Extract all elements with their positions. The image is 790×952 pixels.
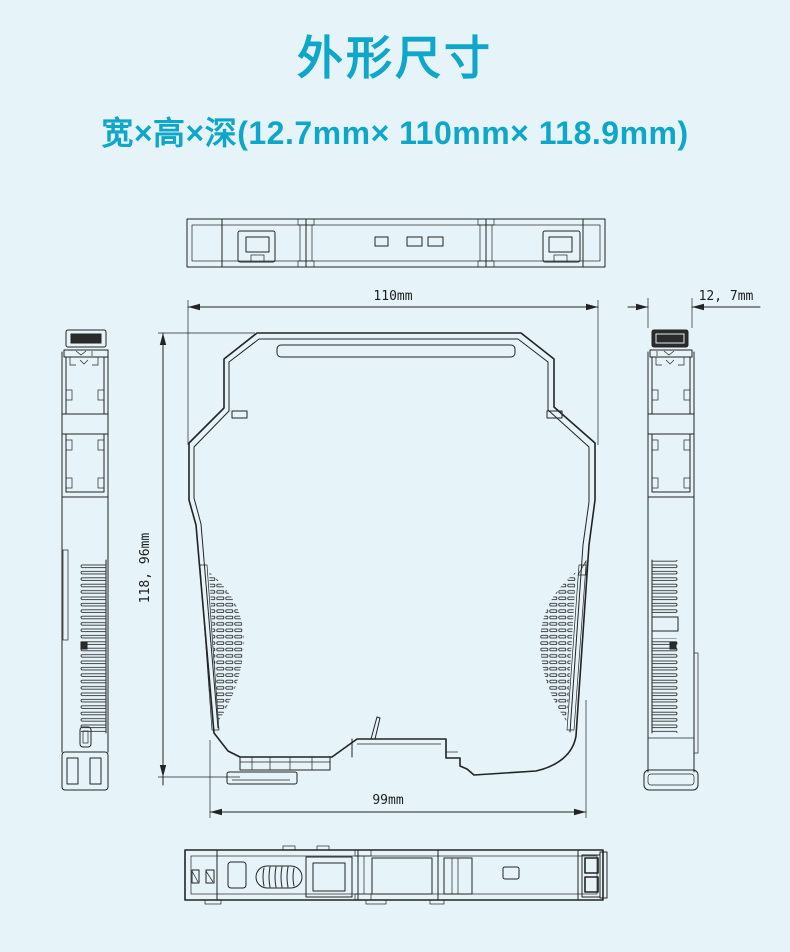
dim-label-width: 110mm <box>373 289 412 304</box>
bottom-view-drawing <box>185 846 607 904</box>
left-side-view-drawing <box>62 330 108 790</box>
dim-label-thickness: 12, 7mm <box>699 289 754 304</box>
dimension-annotations: 110mm 118, 96mm 99mm 12, 7mm <box>138 289 760 818</box>
outline-dimension-drawing: 110mm 118, 96mm 99mm 12, 7mm <box>0 190 790 952</box>
dim-label-height: 118, 96mm <box>138 533 153 604</box>
top-view-drawing <box>187 219 605 267</box>
dimensions-subtitle: 宽×高×深(12.7mm× 110mm× 118.9mm) <box>0 108 790 154</box>
front-view-drawing <box>189 333 595 784</box>
dim-label-rail-width: 99mm <box>372 793 403 808</box>
page-title: 外形尺寸 <box>0 22 790 88</box>
right-side-view-drawing <box>644 330 698 790</box>
